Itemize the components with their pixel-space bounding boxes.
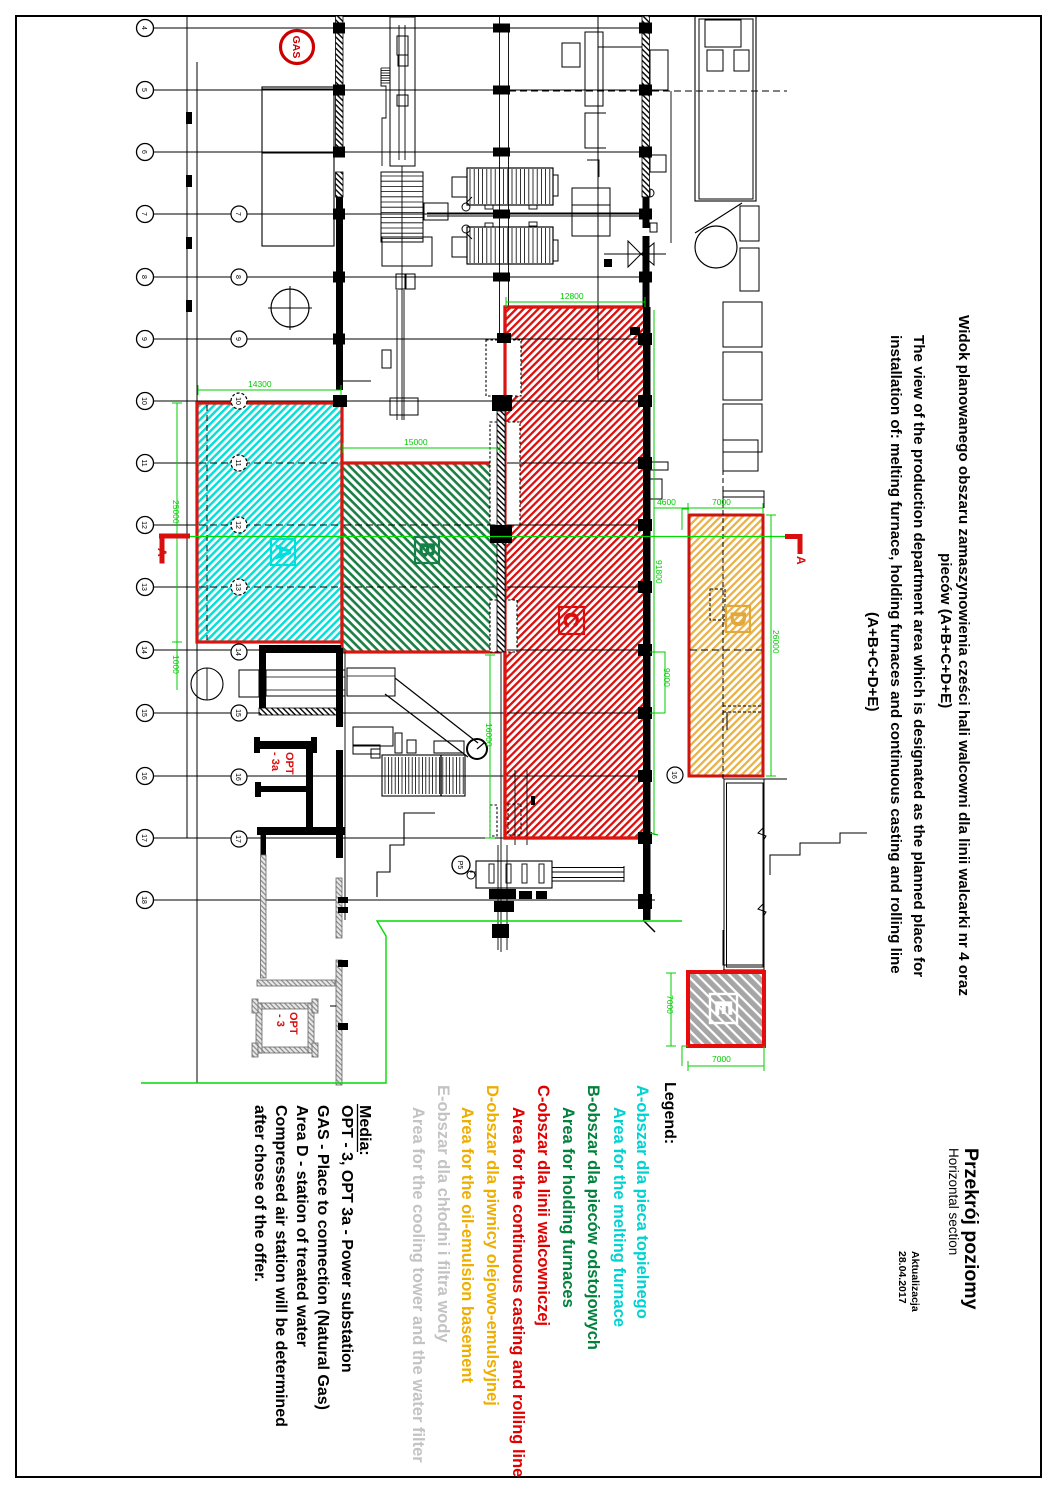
svg-text:C-obszar dla linii walcownicze: C-obszar dla linii walcowniczej (534, 1085, 552, 1326)
svg-text:B-obszar dla pieców odstojowyc: B-obszar dla pieców odstojowych (584, 1085, 602, 1350)
svg-text:28.04.2017: 28.04.2017 (896, 1251, 908, 1304)
svg-text:8: 8 (140, 275, 147, 279)
svg-text:Przekrój poziomy: Przekrój poziomy (960, 1148, 982, 1310)
svg-text:26000: 26000 (771, 630, 781, 654)
svg-text:6: 6 (140, 150, 147, 154)
svg-text:Media:: Media: (356, 1105, 373, 1156)
svg-text:Area for the cooling tower and: Area for the cooling tower and the water… (409, 1107, 427, 1463)
svg-text:OPT: OPT (287, 1012, 299, 1035)
svg-text:pieców (A+B+C+D+E): pieców (A+B+C+D+E) (937, 553, 954, 708)
svg-text:B: B (415, 542, 438, 557)
svg-text:10: 10 (140, 397, 147, 405)
svg-text:Compressed air station will be: Compressed air station will be determine… (272, 1105, 289, 1427)
svg-text:D: D (726, 611, 749, 626)
svg-text:Horizontal section: Horizontal section (946, 1148, 961, 1255)
svg-text:12: 12 (140, 521, 147, 529)
svg-text:Legend:: Legend: (661, 1082, 678, 1144)
svg-text:Area for holding furnaces: Area for holding furnaces (559, 1107, 577, 1308)
svg-text:15: 15 (234, 709, 241, 717)
svg-text:- 3: - 3 (274, 1014, 286, 1027)
svg-text:A: A (271, 544, 294, 559)
svg-text:Area for the oil-emulsion base: Area for the oil-emulsion basement (458, 1107, 476, 1383)
svg-text:15: 15 (140, 709, 147, 717)
svg-text:Aktualizacja: Aktualizacja (909, 1251, 921, 1312)
svg-text:A-obszar dla pieca topielnego: A-obszar dla pieca topielnego (633, 1085, 651, 1319)
svg-text:17: 17 (234, 835, 241, 843)
svg-text:4: 4 (140, 26, 147, 30)
svg-text:installation of: melting furna: installation of: melting furnace, holdin… (887, 335, 904, 974)
svg-text:25000: 25000 (171, 500, 181, 524)
svg-text:D-obszar dla piwnicy olejowo-e: D-obszar dla piwnicy olejowo-emulsyjnej (483, 1085, 501, 1406)
svg-text:A: A (155, 548, 169, 557)
svg-text:Area for the continuous castin: Area for the continuous casting and roll… (509, 1107, 527, 1477)
svg-text:7: 7 (140, 212, 147, 216)
svg-text:16000: 16000 (484, 723, 494, 747)
svg-text:16: 16 (670, 771, 677, 779)
svg-text:8: 8 (234, 275, 241, 279)
svg-text:E-obszar dla chłodni i filtra: E-obszar dla chłodni i filtra wody (434, 1085, 452, 1343)
svg-text:16: 16 (140, 772, 147, 780)
svg-text:7000: 7000 (712, 497, 731, 507)
svg-text:11: 11 (140, 459, 147, 466)
svg-text:GAS - Place to connection (Nat: GAS - Place to connection (Natural Gas) (314, 1105, 331, 1410)
svg-text:14: 14 (140, 646, 147, 654)
svg-text:12800: 12800 (560, 291, 584, 301)
svg-text:P5: P5 (456, 861, 463, 870)
svg-text:Widok planowanego obszaru zama: Widok planowanego obszaru zamaszynowieni… (955, 315, 972, 996)
svg-text:OPT - 3, OPT 3a - Power substa: OPT - 3, OPT 3a - Power substation (338, 1105, 355, 1373)
svg-text:18: 18 (140, 896, 147, 904)
svg-text:11: 11 (234, 459, 241, 466)
svg-text:7000: 7000 (712, 1054, 731, 1064)
svg-text:16: 16 (234, 773, 241, 781)
svg-text:14: 14 (234, 648, 241, 656)
svg-text:(A+B+C+D+E): (A+B+C+D+E) (864, 612, 881, 712)
svg-text:9000: 9000 (662, 668, 672, 687)
svg-text:OPT: OPT (283, 752, 295, 775)
svg-text:after chose of the offer.: after chose of the offer. (251, 1105, 268, 1282)
svg-text:- 3a: - 3a (269, 752, 281, 772)
svg-text:Area D - station of treated wa: Area D - station of treated water (293, 1105, 310, 1347)
svg-text:7000: 7000 (665, 995, 675, 1014)
svg-text:12: 12 (234, 521, 241, 529)
svg-text:9: 9 (140, 337, 147, 341)
svg-text:91800: 91800 (654, 560, 664, 584)
svg-text:Area for the melting furnace: Area for the melting furnace (610, 1107, 628, 1327)
svg-text:5: 5 (140, 88, 147, 92)
svg-text:14300: 14300 (248, 379, 272, 389)
svg-text:13: 13 (234, 583, 241, 591)
svg-text:A: A (794, 556, 808, 565)
svg-text:10: 10 (234, 397, 241, 405)
svg-text:7: 7 (234, 212, 241, 216)
svg-text:17: 17 (140, 834, 147, 842)
svg-text:9: 9 (234, 337, 241, 341)
svg-text:13: 13 (140, 583, 147, 591)
svg-text:GAS: GAS (290, 36, 302, 59)
svg-text:E: E (711, 1001, 736, 1016)
svg-text:4600: 4600 (657, 497, 676, 507)
svg-text:15000: 15000 (404, 437, 428, 447)
svg-text:The view of the production dep: The view of the production department ar… (910, 335, 927, 977)
svg-text:1000: 1000 (171, 655, 181, 674)
svg-text:C: C (559, 612, 582, 627)
